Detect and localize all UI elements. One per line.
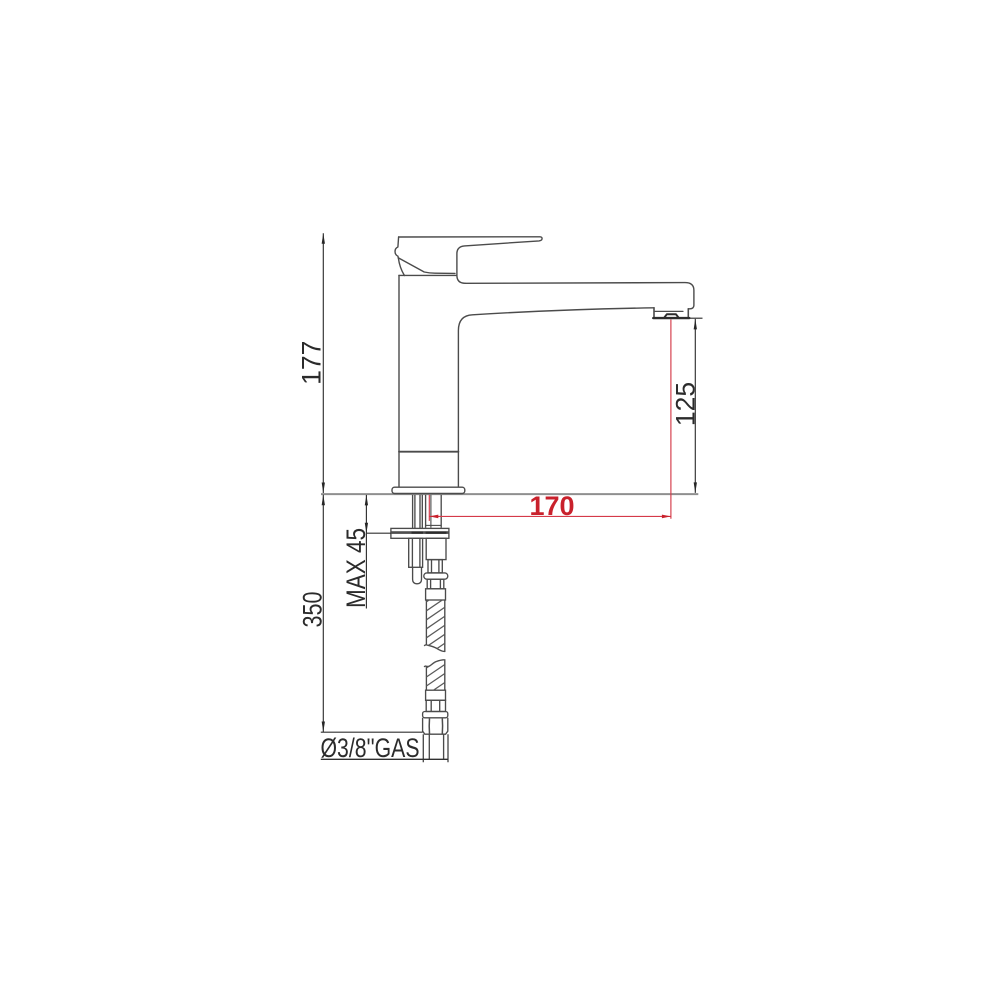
- svg-text:Ø3/8''GAS: Ø3/8''GAS: [321, 733, 420, 763]
- svg-text:170: 170: [529, 491, 574, 521]
- svg-text:350: 350: [297, 592, 327, 628]
- svg-text:177: 177: [296, 341, 326, 385]
- svg-text:MAX 45: MAX 45: [341, 528, 371, 608]
- svg-text:125: 125: [670, 382, 700, 426]
